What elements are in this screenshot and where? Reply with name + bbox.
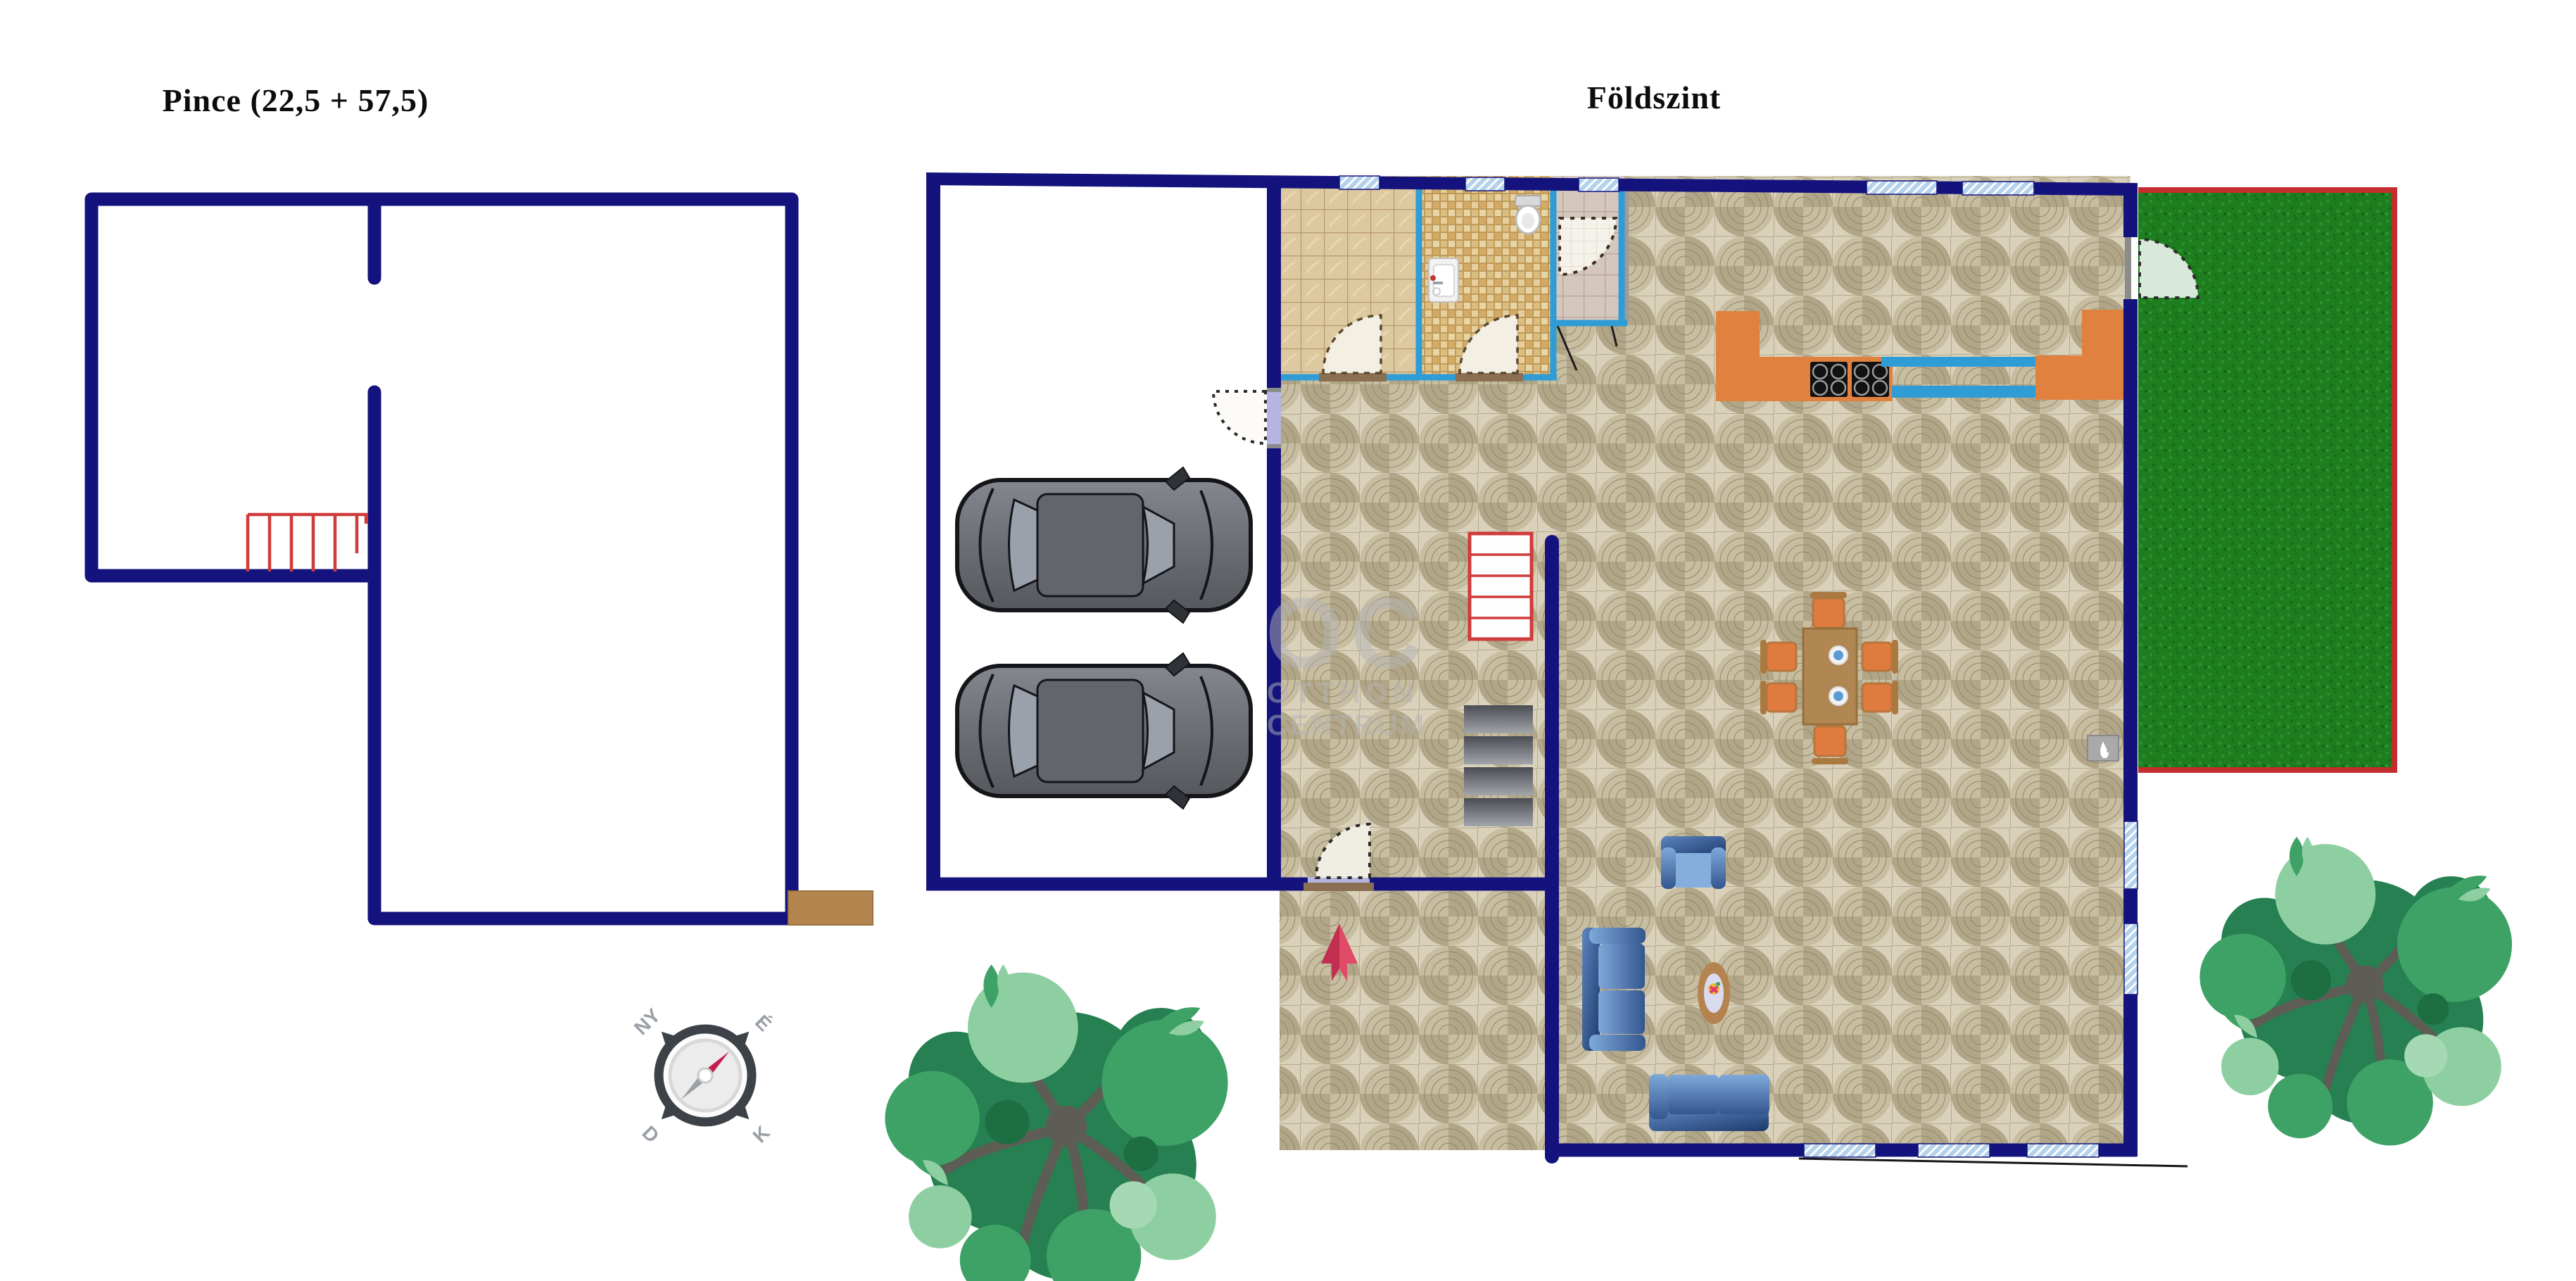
compass-label-nw: NY xyxy=(630,1004,665,1040)
door-threshold xyxy=(1456,373,1523,381)
wall-shadow xyxy=(1624,191,1629,322)
tree-left xyxy=(885,964,1227,1281)
basement-plan xyxy=(91,199,873,925)
grass-border-bottom xyxy=(2138,767,2397,773)
basement-walls xyxy=(91,199,792,919)
garage-door-frame xyxy=(1267,391,1281,445)
watermark-initials: OC xyxy=(1265,577,1429,689)
sofa-bottom xyxy=(1649,1074,1769,1131)
wall-shadow-line xyxy=(1799,1159,2187,1166)
watermark: OC OTTHON CENTRUM xyxy=(1265,577,1429,741)
basement-stairs xyxy=(248,515,368,572)
grass-border-right xyxy=(2392,187,2397,773)
tree-right xyxy=(2199,837,2512,1146)
watermark-line1: OTTHON xyxy=(1267,676,1418,709)
door-threshold xyxy=(1319,373,1387,381)
garden-door-panel xyxy=(2125,237,2131,299)
kitchen-bar-shelf-bottom xyxy=(1892,386,2035,398)
fireplace xyxy=(2088,736,2119,761)
watermark-line2: CENTRUM xyxy=(1267,709,1426,741)
car-bottom xyxy=(957,653,1251,809)
kitchen-bar-shelf-top xyxy=(1881,357,2035,367)
compass-label-se: K xyxy=(748,1121,774,1147)
garage-door-leaf xyxy=(1213,391,1265,443)
compass-label-ne: É xyxy=(751,1011,776,1035)
interior-stairs xyxy=(1470,534,1532,639)
grass-border-top xyxy=(2138,187,2397,193)
cellar-exit-hatch xyxy=(788,891,873,925)
armchair xyxy=(1661,836,1726,889)
floorplan-drawing: OC OTTHON CENTRUM NY É D xyxy=(0,0,2576,1281)
sink xyxy=(1429,258,1458,302)
floorplan-page: Pince (22,5 + 57,5) Földszint xyxy=(0,0,2576,1281)
toilet xyxy=(1515,196,1541,234)
entrance-threshold xyxy=(1303,883,1374,891)
compass-label-sw: D xyxy=(638,1121,663,1147)
car-top xyxy=(957,467,1251,623)
dining-table xyxy=(1803,629,1857,724)
compass-rose: NY É D K xyxy=(630,1004,776,1147)
coffee-table xyxy=(1698,962,1730,1024)
